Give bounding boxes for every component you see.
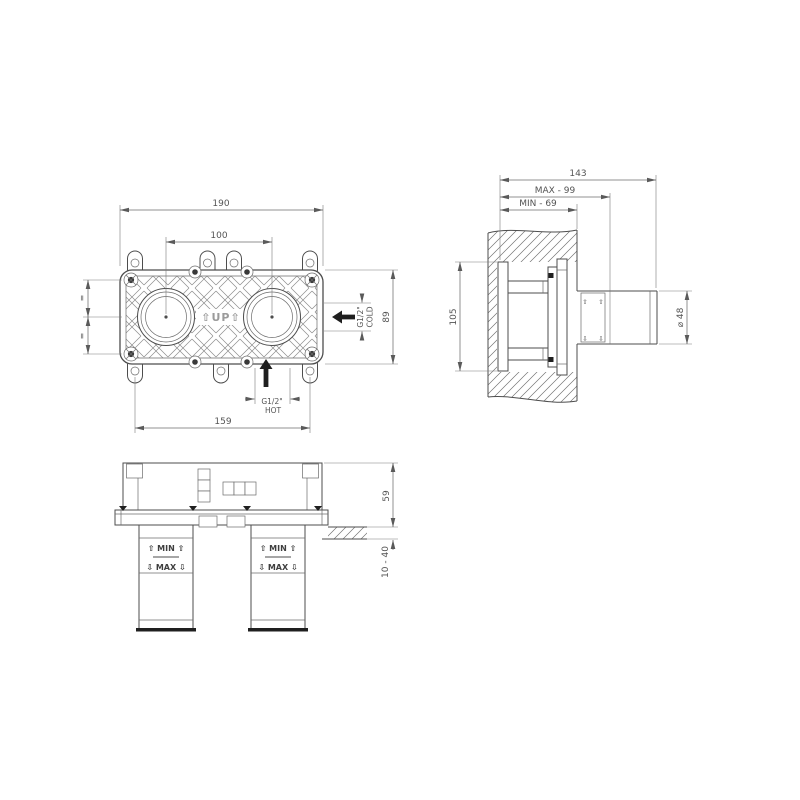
equal-mark: =: [78, 295, 87, 302]
screw-icon: [305, 273, 319, 287]
dim-label: 59: [382, 490, 392, 502]
center-tab: [227, 516, 245, 527]
cold-label: COLD: [366, 306, 375, 327]
dim-body-depth: 59: [324, 463, 398, 527]
screw-icon: [241, 266, 253, 278]
dim-plaster-range: 10 - 40: [367, 539, 398, 578]
min-row: ⇧ MIN ⇧: [260, 544, 297, 553]
dim-label: 89: [382, 311, 392, 323]
spout-sleeve: ⇧ ⇧ ⇩ ⇩: [577, 291, 657, 344]
screw-icon: [189, 266, 201, 278]
dim-label: 190: [212, 199, 229, 209]
dim-diameter: ⌀ 48: [659, 291, 692, 344]
max-row: ⇩ MAX ⇩: [258, 563, 297, 572]
hot-thread-label: G1/2": [261, 397, 282, 406]
dim-equal-spacing: = =: [78, 280, 123, 354]
bottom-view: ⇧ MIN ⇧ ⇩ MAX ⇩ ⇧ MIN ⇧ ⇩ MAX ⇩ 59 10 - …: [115, 463, 398, 632]
right-cartridge-sleeve: ⇧ MIN ⇧ ⇩ MAX ⇩: [248, 525, 308, 632]
max-row: ⇩ MAX ⇩: [146, 563, 185, 572]
dim-label: 100: [210, 231, 227, 241]
screw-icon: [189, 356, 201, 368]
screw-icon: [124, 273, 138, 287]
equal-mark: =: [78, 333, 87, 340]
technical-drawing-page: ⇧UP⇧: [0, 0, 800, 800]
sleeve-end-cap: [248, 628, 308, 632]
dim-mounting-holes: 159: [135, 377, 310, 433]
dim-label: 105: [449, 308, 459, 325]
corner-bracket: [303, 464, 319, 478]
left-cartridge-sleeve: ⇧ MIN ⇧ ⇩ MAX ⇩: [136, 525, 196, 632]
center-tab: [199, 516, 217, 527]
dim-label: ⌀ 48: [676, 307, 686, 327]
dim-label: 143: [569, 169, 586, 179]
min-arrow-icon: ⇧: [582, 298, 587, 306]
dim-label: MIN - 69: [519, 199, 557, 209]
screw-icon: [305, 347, 319, 361]
min-row: ⇧ MIN ⇧: [148, 544, 185, 553]
screw-icon: [241, 356, 253, 368]
cold-inlet: G1/2" COLD: [324, 294, 375, 340]
sleeve-end-cap: [136, 628, 196, 632]
front-view: ⇧UP⇧: [78, 199, 399, 433]
cold-thread-label: G1/2": [356, 306, 365, 327]
max-arrow-icon: ⇩: [582, 335, 587, 343]
dim-label: MAX - 99: [535, 186, 576, 196]
wall-strip-section: [322, 527, 367, 539]
hot-label: HOT: [265, 406, 282, 415]
dim-label: 159: [214, 417, 231, 427]
side-view: ⇧ ⇧ ⇩ ⇩ 143 MAX - 99 MIN - 69 105: [449, 169, 692, 402]
corner-bracket: [127, 464, 143, 478]
min-arrow-icon: ⇧: [598, 298, 603, 306]
dim-label: 10 - 40: [381, 546, 391, 578]
screw-icon: [549, 357, 554, 362]
technical-drawing: ⇧UP⇧: [0, 0, 800, 800]
max-arrow-icon: ⇩: [598, 335, 603, 343]
screw-icon: [124, 347, 138, 361]
dim-depth-min: MIN - 69: [500, 199, 577, 229]
up-marking: ⇧UP⇧: [201, 311, 240, 324]
screw-icon: [549, 273, 554, 278]
cold-flow-arrow-icon: [332, 311, 355, 324]
hot-inlet: G1/2" HOT: [245, 359, 300, 415]
housing-box: [123, 463, 322, 510]
flange: [115, 510, 328, 525]
